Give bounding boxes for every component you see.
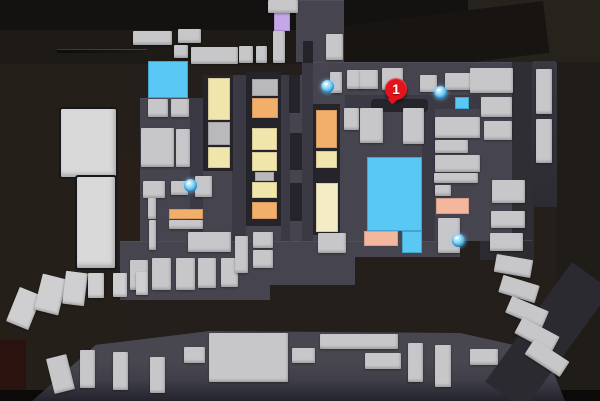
building xyxy=(484,121,512,140)
road-block xyxy=(435,345,451,387)
road-block xyxy=(292,348,315,363)
stall xyxy=(198,258,216,288)
room-gray xyxy=(252,79,278,96)
building xyxy=(149,220,156,250)
building xyxy=(434,173,478,183)
kiosk xyxy=(536,119,552,163)
road-block xyxy=(150,357,165,393)
parked-car xyxy=(62,271,88,306)
building xyxy=(273,31,285,63)
road-block xyxy=(320,334,398,349)
room-yellow xyxy=(208,147,230,168)
crosswalk-stripe xyxy=(491,211,525,228)
building xyxy=(344,108,359,130)
building xyxy=(435,155,480,172)
pool-upper xyxy=(367,157,422,231)
room-yellow xyxy=(252,152,277,171)
building xyxy=(326,34,343,60)
court-bar xyxy=(303,41,313,63)
wall-line xyxy=(57,49,147,53)
room-orange-bar xyxy=(169,209,203,219)
building xyxy=(169,220,203,229)
collectible-orb-icon[interactable] xyxy=(434,86,447,99)
stall xyxy=(176,258,195,290)
road-block xyxy=(408,343,423,382)
room-gray xyxy=(255,172,274,181)
building xyxy=(148,99,168,117)
building xyxy=(360,108,383,143)
building xyxy=(188,232,231,252)
room-orange xyxy=(252,98,278,118)
road-block xyxy=(470,349,498,365)
crosswalk-stripe xyxy=(490,233,523,251)
collectible-orb-icon[interactable] xyxy=(321,80,334,93)
water-square xyxy=(148,61,188,98)
room-yellow xyxy=(252,182,277,198)
building xyxy=(435,140,468,153)
building xyxy=(318,233,346,253)
building xyxy=(256,46,267,63)
building xyxy=(195,176,212,197)
white-building-lower xyxy=(77,177,115,268)
court-bar xyxy=(290,133,302,170)
building xyxy=(470,68,513,93)
room-orange xyxy=(252,202,277,219)
road-block xyxy=(80,350,95,388)
stall xyxy=(235,236,248,273)
room-salmon xyxy=(364,231,398,246)
room-pale-yellow xyxy=(316,183,338,232)
building xyxy=(268,0,298,13)
court-bar xyxy=(290,183,302,221)
objective-marker-pin[interactable]: 1 xyxy=(385,78,407,100)
kiosk xyxy=(536,69,552,114)
parked-car xyxy=(113,273,127,297)
building xyxy=(435,185,451,196)
building xyxy=(176,129,190,167)
building xyxy=(360,70,378,89)
building xyxy=(191,47,238,64)
white-building-upper xyxy=(61,109,116,177)
stall xyxy=(152,258,171,290)
water-small xyxy=(455,97,469,109)
road-block xyxy=(365,353,401,369)
building xyxy=(171,99,189,117)
room-yellow xyxy=(316,151,337,168)
room-gray xyxy=(208,122,230,145)
objective-marker-label: 1 xyxy=(392,82,400,96)
minimap-overlay: 1 xyxy=(0,0,600,401)
street-vertical xyxy=(302,62,313,241)
room-salmon xyxy=(436,198,469,214)
building xyxy=(403,108,424,144)
stall xyxy=(253,250,273,268)
building xyxy=(239,46,253,63)
bg-red-glow xyxy=(0,340,26,395)
collectible-orb-icon[interactable] xyxy=(452,234,465,247)
building xyxy=(133,31,172,45)
road-block xyxy=(184,347,205,363)
room-orange xyxy=(316,110,337,148)
building xyxy=(174,45,188,58)
building xyxy=(178,29,201,43)
parked-car xyxy=(88,273,104,298)
road-block xyxy=(113,352,128,390)
building xyxy=(492,180,525,203)
street-vertical xyxy=(232,75,246,241)
road-block-large xyxy=(209,333,288,382)
collectible-orb-icon[interactable] xyxy=(184,179,197,192)
room-yellow xyxy=(252,128,277,150)
parked-car xyxy=(136,272,148,295)
building xyxy=(481,97,512,117)
building xyxy=(143,181,165,198)
court-bar xyxy=(289,75,300,113)
pool-lower xyxy=(402,231,422,253)
stall xyxy=(253,232,273,248)
building xyxy=(148,198,156,219)
room-yellow xyxy=(208,78,230,120)
building xyxy=(435,117,480,138)
building xyxy=(141,128,174,167)
